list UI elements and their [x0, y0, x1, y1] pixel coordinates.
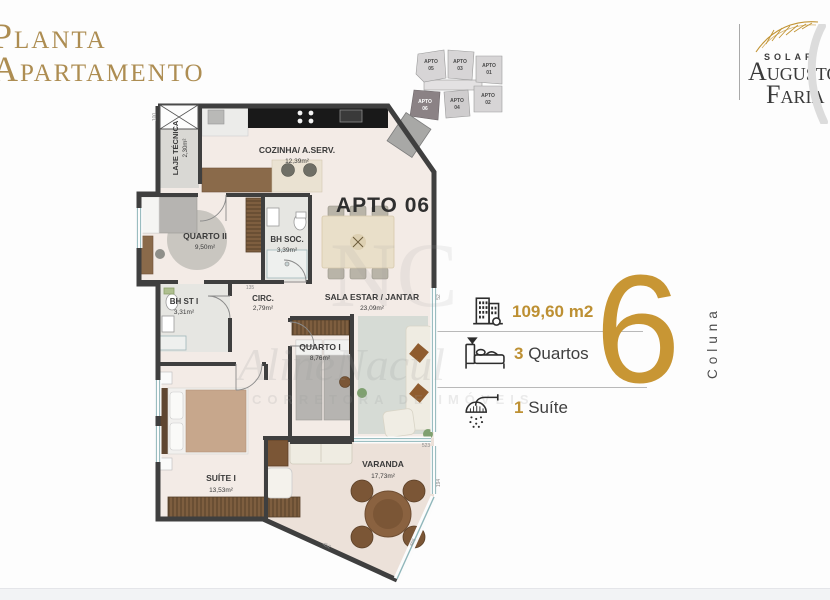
room-label-sala: SALA ESTAR / JANTAR [325, 292, 419, 302]
svg-text:02: 02 [485, 100, 491, 106]
info-suite-label: Suíte [528, 398, 568, 417]
room-label-bhsoc: BH SOC. [270, 235, 303, 244]
info-area-row: 109,60 m2 [512, 302, 593, 322]
info-quartos-row: 3 Quartos [514, 344, 589, 364]
svg-text:135: 135 [246, 285, 255, 291]
room-label-bhst1: BH ST I [170, 297, 198, 306]
room-area-quarto1: 8,76m² [310, 355, 331, 362]
svg-text:APTO: APTO [424, 59, 438, 65]
page-title: Planta Apartamento [0, 20, 205, 86]
bottom-strip [0, 588, 830, 600]
column-label: Coluna [705, 277, 720, 379]
page: Planta Apartamento APTO 05 APTO 03 APTO … [0, 0, 830, 600]
room-label-cozinha: COZINHA/ A.SERV. [259, 145, 335, 155]
svg-text:03: 03 [457, 66, 463, 72]
svg-text:523: 523 [422, 443, 431, 449]
quarto1-furniture [292, 320, 351, 420]
info-area-value: 109,60 m2 [512, 302, 593, 321]
svg-text:APTO: APTO [481, 93, 495, 99]
room-label-laje: LAJE TÉCNICA [171, 120, 180, 175]
room-area-quarto2: 9,50m² [195, 244, 216, 251]
svg-text:100: 100 [152, 113, 158, 122]
svg-text:05: 05 [428, 66, 434, 72]
crescent-graphic [798, 24, 830, 124]
room-label-varanda: VARANDA [362, 459, 404, 469]
key-plan-unit-apto-01: APTO 01 [476, 56, 502, 84]
room-label-suite1: SUÍTE I [206, 473, 236, 483]
svg-text:52: 52 [436, 294, 442, 300]
svg-text:01: 01 [486, 70, 492, 76]
bed-icon [460, 336, 510, 376]
key-plan-unit-apto-05: APTO 05 [416, 50, 446, 82]
logo-divider [739, 24, 740, 100]
svg-text:APTO: APTO [453, 59, 467, 65]
room-area-sala: 23,09m² [360, 305, 385, 312]
key-plan-unit-apto-02: APTO 02 [474, 86, 502, 112]
svg-text:APTO: APTO [482, 63, 496, 69]
room-area-bhsoc: 3,39m² [277, 247, 298, 254]
sala-furniture [349, 316, 433, 439]
room-area-cozinha: 12,39m² [285, 158, 310, 165]
floor-plan: LAJE TÉCNICA 2,30m² COZINHA/ A.SERV. 12,… [120, 95, 450, 595]
room-label-quarto2: QUARTO II [183, 231, 227, 241]
room-area-varanda: 17,73m² [371, 473, 396, 480]
building-icon [470, 294, 506, 330]
shower-icon [462, 390, 502, 430]
svg-text:APTO: APTO [450, 98, 464, 104]
key-plan-hallway [424, 80, 482, 90]
room-area-suite1: 13,53m² [209, 487, 234, 494]
room-area-circ: 2,79m² [253, 305, 274, 312]
room-label-quarto1: QUARTO I [299, 342, 340, 352]
info-quartos-count: 3 [514, 344, 523, 363]
info-suite-row: 1 Suíte [514, 398, 568, 418]
column-number: 6 [595, 252, 681, 406]
svg-text:194: 194 [436, 479, 442, 488]
page-title-line2: Apartamento [0, 53, 205, 86]
svg-text:04: 04 [454, 105, 460, 111]
apto-number-label: APTO 06 [336, 194, 430, 217]
info-quartos-label: Quartos [528, 344, 588, 363]
info-suite-count: 1 [514, 398, 523, 417]
room-area-laje: 2,30m² [183, 139, 189, 158]
room-area-bhst1: 3,31m² [174, 309, 195, 316]
room-label-circ: CIRC. [252, 294, 274, 303]
key-plan-unit-apto-03: APTO 03 [448, 50, 474, 80]
